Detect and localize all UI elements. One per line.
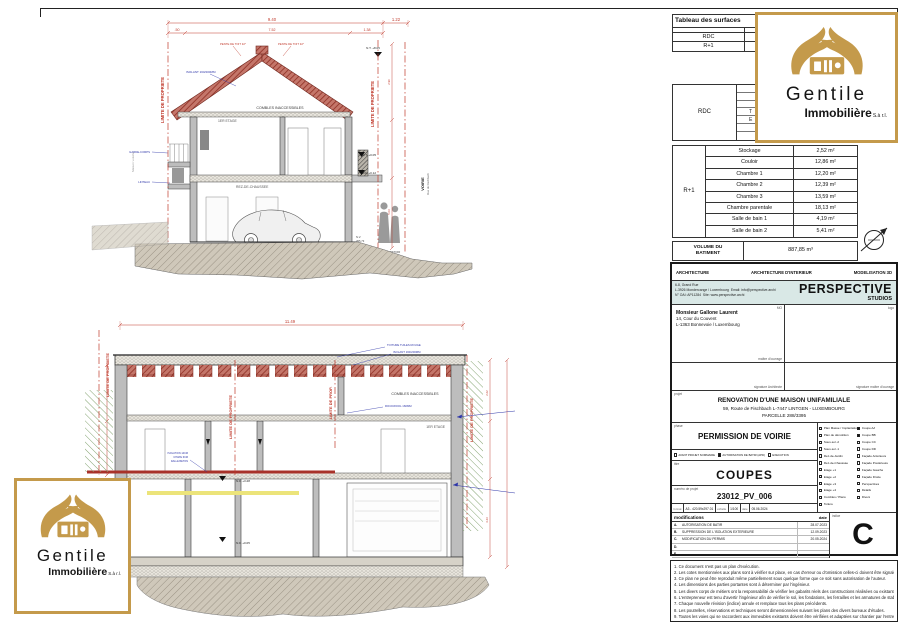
volume-label: VOLUME DUBATIMENT [673, 242, 744, 260]
logo-cell: logo [785, 305, 896, 362]
client-cell: MO Monsieur Gallone Laurent 14, Cour du … [672, 305, 785, 362]
room-rows: Stockage 2,52 m² Couloir 12,86 m² Chambr… [706, 146, 857, 237]
attic-label: COMBLES INACCESSIBLES [391, 392, 439, 396]
modification-rows: A. AUTORISATION DE BATIR 28.07.2023 B. S… [672, 522, 829, 558]
foundation-slab [115, 557, 463, 566]
street-label: VOIRIE [420, 177, 425, 191]
insulation-note: ISOLATION 14CM CHAPE 6CM DALLE BETON [167, 452, 207, 472]
plan-checkbox-item: Coupe BB [857, 432, 895, 439]
brand-name: Gentile [786, 84, 867, 106]
plan-checkbox-item: Sous-sol -1 [819, 446, 857, 453]
sheet-title-box: titre COUPES [672, 461, 817, 485]
vdim-1: 2.62 [485, 390, 489, 396]
plan-checkbox-item: Façade Gauche [857, 466, 895, 473]
hidden-cell-fragment: E [749, 117, 752, 123]
level-labels: N.F. +3.28 N.F. +0.05 [219, 476, 250, 545]
svg-text:CHAPE 6CM: CHAPE 6CM [173, 456, 188, 459]
rockwool-label: ROCKWOOL 160MM [347, 404, 412, 413]
left-annotations: GARDE-CORPS LINTEAU [129, 150, 170, 184]
checkbox-icon [819, 447, 822, 450]
modifications-table: modifications date A. AUTORISATION DE BA… [672, 513, 830, 558]
svg-text:DALLE BETON: DALLE BETON [171, 460, 188, 463]
plan-checkbox-item: Perspectives [857, 480, 895, 487]
checkbox-icon [857, 496, 860, 499]
room-row: Chambre 3 13,59 m² [706, 192, 857, 203]
plan-checkbox-item: Etage +3 [819, 480, 857, 487]
plan-checkbox-item: Façade Antérieure [857, 453, 895, 460]
plans-column-1: Plan Masse / ImplantationPlan de démolit… [819, 425, 857, 510]
plan-checkbox-item: Détails [857, 487, 895, 494]
svg-text:ROCKWOOL 160MM: ROCKWOOL 160MM [385, 404, 412, 408]
discipline-interior: ARCHITECTURE D'INTERIEUR [751, 270, 812, 275]
balcony [168, 144, 190, 189]
title-block: ARCHITECTURE ARCHITECTURE D'INTERIEUR MO… [670, 262, 898, 556]
volume-row: VOLUME DUBATIMENT 887,85 m³ [672, 241, 858, 261]
checkbox-icon [819, 441, 822, 444]
checkbox-icon [819, 434, 822, 437]
plan-checkbox-item: Sous-sol -2 [819, 439, 857, 446]
checkbox-icon [819, 489, 822, 492]
ground-hatch [135, 242, 472, 279]
ground-hatch [137, 577, 489, 616]
neighbor-label: Maison voisine [131, 152, 135, 172]
plan-checkbox-item: Coupe DD [857, 446, 895, 453]
gentile-hands-house-icon [29, 489, 117, 545]
green-hatch-right [463, 361, 483, 531]
checkbox-icon [819, 475, 822, 478]
svg-text:9.40: 9.40 [268, 17, 277, 22]
svg-text:N.T. +0.05: N.T. +0.05 [362, 153, 376, 157]
checkbox-icon [857, 468, 860, 471]
floor1-label: 1ER ETAGE [218, 119, 238, 123]
checkbox-icon [857, 454, 860, 457]
phase-box: phase PERMISSION DE VOIRIE [672, 423, 817, 449]
section-drawing-top: 9.40 1.22 .50 7.52 1.38 N.T. +8.05 PENTE… [40, 12, 485, 302]
plans-column-2: Coupe AACoupe BBCoupe CCCoupe DDFaçade A… [857, 425, 895, 510]
brand-type: ImmobilièreS.à r.l. [804, 106, 887, 120]
revision-index: C [830, 513, 896, 557]
modification-row: C. MODIFICATION DU PERMIS 20.05.2024 [672, 536, 829, 543]
general-notes: 1. Ce document n'est pas un plan d'exécu… [670, 560, 898, 622]
client-row: MO Monsieur Gallone Laurent 14, Cour du … [672, 304, 896, 362]
vdim-2: 3.23 [485, 517, 489, 523]
svg-text:ISOLATION 14CM: ISOLATION 14CM [167, 452, 188, 455]
checkbox-icon [819, 503, 822, 506]
svg-text:TOITURE TUILES ROUGE: TOITURE TUILES ROUGE [387, 343, 421, 347]
svg-text:N.F. +3.28: N.F. +3.28 [236, 479, 250, 483]
modification-row: B. SUPPRESSION DE L'ISOLATION EXTERIEURE… [672, 529, 829, 536]
plan-checkbox-item: Rez-de-Jardin [819, 453, 857, 460]
floor1-label: 1ER ETAGE [426, 425, 446, 429]
plan-checkbox-item: Façade Droite [857, 473, 895, 480]
phase-checkbox: AUTORISATION DE BATIR (APD) [718, 453, 765, 457]
svg-text:1.38: 1.38 [364, 28, 371, 32]
checkbox-icon [857, 441, 860, 444]
plan-checkbox-item: Coupe CC [857, 439, 895, 446]
firm-contact: 6-8, Grand Rue L-3926 Mondercange / Luxe… [672, 281, 776, 304]
phase-and-plans-row: phase PERMISSION DE VOIRIE AVANT PROJET … [672, 422, 896, 512]
plan-checkbox-item: Etage +1 [819, 466, 857, 473]
dimension-labels: 9.40 1.22 .50 7.52 1.38 [175, 17, 401, 32]
project-address: 59, Route de Fischbach L-7447 LINTGEN - … [672, 404, 896, 411]
checkbox-icon [857, 482, 860, 485]
limit-label-right: LIMITE DE PROPRIETE [370, 81, 375, 127]
revision-index-cell: indice C [830, 513, 896, 558]
phase-checkboxes: AVANT PROJET SOMMAIREAUTORISATION DE BAT… [672, 449, 817, 461]
north-arrow-icon [858, 224, 892, 254]
floor-slab [190, 175, 352, 182]
plan-checkbox-item: Combles / Plans [819, 494, 857, 501]
checkbox-icon [857, 434, 860, 437]
floor-slab [127, 473, 451, 479]
people-silhouettes [378, 202, 400, 243]
rdc-row-label: RDC [673, 85, 737, 140]
street-name: Rue de Fischbach [426, 173, 430, 195]
roof-slab [115, 355, 465, 365]
room-row: Stockage 2,52 m² [706, 146, 857, 157]
project-number-box: numéro de projet 23012_PV_006 [672, 485, 817, 503]
modification-row: E. [672, 551, 829, 558]
modifications-row: modifications date A. AUTORISATION DE BA… [672, 512, 896, 558]
modification-row: A. AUTORISATION DE BATIR 28.07.2023 [672, 522, 829, 529]
svg-text:LINTEAU: LINTEAU [138, 180, 150, 184]
checkbox-icon [819, 496, 822, 499]
red-level-line [87, 471, 335, 474]
gravel-band [115, 566, 463, 577]
attic-label: COMBLES INACCESSIBLES [256, 106, 304, 110]
phase-title: PERMISSION DE VOIRIE [672, 423, 817, 441]
plan-checkbox-item: Façade Postérieure [857, 459, 895, 466]
room-row: Couloir 12,86 m² [706, 157, 857, 168]
sheet-title: COUPES [672, 461, 817, 482]
room-row: Chambre 2 12,39 m² [706, 180, 857, 191]
dimension-lines [166, 20, 410, 38]
plan-checkbox-item: Coupe AA [857, 425, 895, 432]
disciplines-row: ARCHITECTURE ARCHITECTURE D'INTERIEUR MO… [672, 264, 896, 280]
hidden-cell-fragment: T [749, 109, 752, 115]
r1-surface-table: R+1 Stockage 2,52 m² Couloir 12,86 m² Ch… [672, 145, 858, 238]
checkbox-icon [819, 468, 822, 471]
limit-label-mid2: LIMITE DE PROP. [328, 387, 333, 420]
svg-text:PENTE DE TOIT 32°: PENTE DE TOIT 32° [220, 42, 246, 46]
garage-door [347, 483, 447, 557]
vertical-dims-right [488, 358, 509, 569]
limit-label-left: LIMITE DE PROPRIETE [160, 77, 165, 123]
upper-floor-doors [288, 128, 341, 175]
volume-value: 887,85 m³ [744, 242, 857, 260]
plan-checkbox-item: Plan Masse / Implantation [819, 425, 857, 432]
checkbox-icon [718, 453, 721, 456]
brand-type: ImmobilièreS.à r.l. [48, 566, 121, 578]
checkbox-icon [857, 427, 860, 430]
attic-slab [127, 415, 451, 421]
upper-window [200, 130, 209, 150]
nv-label: N.V. [356, 235, 361, 239]
ground-floor-label: REZ-DE-CHAUSSEE [236, 185, 269, 189]
project-row: projet RENOVATION D'UNE MAISON UNIFAMILI… [672, 390, 896, 422]
plan-checkbox-item: Plan de démolition [819, 432, 857, 439]
checkbox-icon [819, 482, 822, 485]
architect-signature-cell: signature Architecte [672, 363, 785, 390]
note-line: 9. Toutes les voies qui se raccordent au… [674, 614, 894, 620]
brand-name: Gentile [37, 546, 108, 566]
modification-row: D. [672, 544, 829, 551]
plan-checkbox-item: Etage +2 [819, 473, 857, 480]
svg-text:.50: .50 [175, 28, 180, 32]
svg-text:N.F. +0.12: N.F. +0.12 [362, 171, 376, 175]
limit-label-mid: LIMITE DE PROPRIETE [228, 395, 233, 439]
room-row: Chambre 1 12,20 m² [706, 169, 857, 180]
firm-brand: PERSPECTIVE STUDIOS [799, 281, 896, 304]
plan-sheet: 9.40 1.22 .50 7.52 1.38 N.T. +8.05 PENTE… [0, 0, 900, 624]
plan-checkbox-item: Divers [857, 494, 895, 501]
discipline-3d: MODELISATION 3D [854, 270, 892, 275]
vdim-1: 2.90 [387, 79, 391, 85]
attic-slab [178, 112, 350, 117]
room-row: Chambre parentale 18,13 m² [706, 203, 857, 214]
svg-text:N.F. +0.05: N.F. +0.05 [236, 541, 250, 545]
svg-text:ISOLANT 160/200MM: ISOLANT 160/200MM [186, 70, 216, 74]
room-row: Salle de bain 2 5,41 m² [706, 226, 857, 237]
discipline-architecture: ARCHITECTURE [676, 270, 709, 275]
note-line: 8. Les poutrelles, réservations et techn… [674, 608, 894, 614]
brand-logo-top-right: Gentile ImmobilièreS.à r.l. [755, 12, 898, 143]
vdim-2: 5.03 [387, 209, 391, 215]
checkbox-icon [857, 461, 860, 464]
gentile-hands-house-icon [777, 21, 877, 83]
svg-text:1.22: 1.22 [392, 17, 401, 22]
svg-text:ISOLANT 160/200MM: ISOLANT 160/200MM [393, 350, 421, 354]
svg-text:7.52: 7.52 [269, 28, 276, 32]
project-parcel: PARCELLE 288/3395 [672, 411, 896, 418]
plan-checkbox-item: Rez-de-Chaussée [819, 459, 857, 466]
client-name: Monsieur Gallone Laurent [672, 305, 784, 316]
room-row: Salle de bain 1 4,19 m² [706, 214, 857, 225]
yellow-highlight [147, 491, 299, 495]
checkbox-icon [857, 447, 860, 450]
checkbox-icon [857, 475, 860, 478]
plan-checkbox-item: Etage +4 [819, 487, 857, 494]
firm-banner: 6-8, Grand Rue L-3926 Mondercange / Luxe… [672, 280, 896, 304]
limit-label-left: LIMITE DE PROPRIETE [105, 353, 110, 397]
r1-row-label: R+1 [673, 146, 706, 237]
owner-signature-cell: signature maître d'ouvrage [785, 363, 896, 390]
checkbox-icon [674, 453, 677, 456]
checkbox-icon [819, 427, 822, 430]
project-title: RENOVATION D'UNE MAISON UNIFAMILIALE [672, 391, 896, 404]
car [233, 210, 321, 247]
phase-checkbox: EXECUTION [768, 453, 789, 457]
checkbox-icon [819, 461, 822, 464]
sheet-top-border [40, 8, 898, 9]
checkbox-icon [857, 489, 860, 492]
brick-course [119, 365, 463, 377]
section-drawing-bottom: 11.49 COMBLES INACCESSIBLES ROCKWOOL 160… [85, 315, 560, 624]
checkbox-icon [819, 454, 822, 457]
limit-label-right: LIMITE DE PROPRIETE [469, 398, 474, 442]
brand-logo-bottom-left: Gentile ImmobilièreS.à r.l. [14, 478, 131, 614]
phase-checkbox: AVANT PROJET SOMMAIRE [674, 453, 715, 457]
checkbox-icon [768, 453, 771, 456]
down-markers [206, 439, 262, 445]
plan-checkbox-item: Toiture [819, 501, 857, 508]
signature-row: signature Architecte signature maître d'… [672, 362, 896, 390]
svg-text:PENTE DE TOIT 32°: PENTE DE TOIT 32° [278, 42, 304, 46]
overall-dim: 11.49 [285, 319, 296, 324]
